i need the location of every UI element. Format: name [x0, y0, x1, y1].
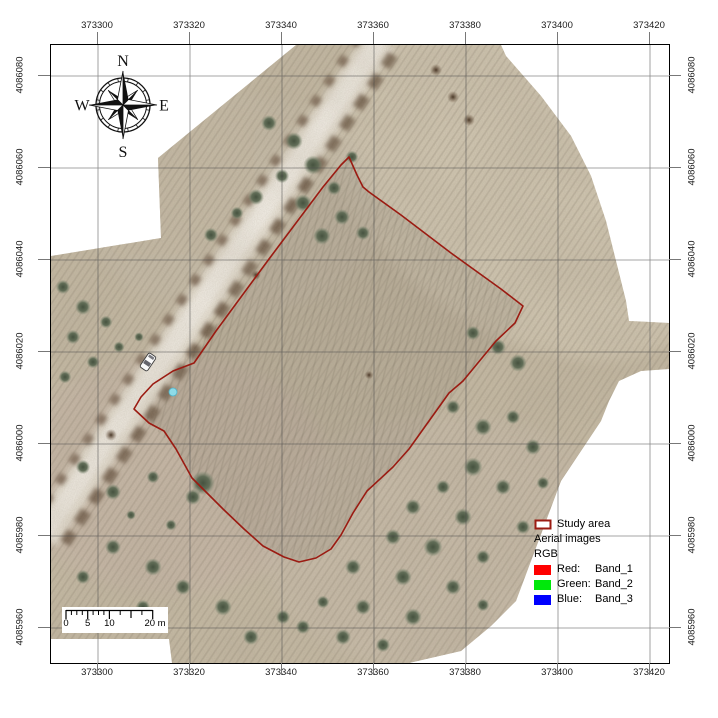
- y-axis-label-left: 4086080: [15, 57, 26, 94]
- axis-tick: [189, 32, 190, 44]
- axis-tick: [38, 167, 50, 168]
- axis-tick: [669, 351, 681, 352]
- axis-tick: [38, 75, 50, 76]
- map-frame: N S E W 0 5 10 20 m: [50, 44, 670, 664]
- legend-band-green-row: Green:Band_2: [534, 577, 633, 592]
- y-axis-label-right: 4086060: [687, 149, 698, 186]
- scale-label-20m: 20 m: [144, 618, 165, 629]
- legend-green-channel: Green:: [557, 577, 595, 592]
- legend-band-blue-row: Blue:Band_3: [534, 592, 633, 607]
- x-axis-label-top: 373420: [633, 20, 665, 31]
- x-axis-label-top: 373300: [81, 20, 113, 31]
- axis-tick: [465, 663, 466, 675]
- scale-label-10: 10: [104, 618, 115, 629]
- y-axis-label-left: 4086000: [15, 425, 26, 462]
- legend-blue-channel: Blue:: [557, 592, 595, 607]
- study-area-swatch: [534, 519, 552, 530]
- axis-tick: [669, 259, 681, 260]
- compass-letter-e: E: [159, 98, 169, 115]
- axis-tick: [557, 663, 558, 675]
- x-axis-label-top: 373360: [357, 20, 389, 31]
- y-axis-label-right: 4086020: [687, 333, 698, 370]
- y-axis-label-right: 4085960: [687, 609, 698, 646]
- axis-tick: [669, 167, 681, 168]
- axis-tick: [649, 663, 650, 675]
- gcp-marker: [169, 388, 177, 396]
- x-axis-label-top: 373340: [265, 20, 297, 31]
- y-axis-label-left: 4086060: [15, 149, 26, 186]
- axis-tick: [373, 32, 374, 44]
- legend-red-channel: Red:: [557, 562, 595, 577]
- axis-tick: [465, 32, 466, 44]
- axis-tick: [557, 32, 558, 44]
- axis-tick: [97, 32, 98, 44]
- axis-tick: [649, 32, 650, 44]
- axis-tick: [97, 663, 98, 675]
- legend-study-area-row: Study area: [534, 517, 633, 532]
- x-axis-label-top: 373320: [173, 20, 205, 31]
- axis-tick: [669, 443, 681, 444]
- legend-layer-title: Aerial images: [534, 532, 633, 547]
- axis-tick: [281, 663, 282, 675]
- axis-tick: [669, 627, 681, 628]
- axis-tick: [669, 535, 681, 536]
- legend-band-red-row: Red:Band_1: [534, 562, 633, 577]
- legend-red-band: Band_1: [595, 563, 633, 575]
- y-axis-label-right: 4086080: [687, 57, 698, 94]
- axis-tick: [281, 32, 282, 44]
- scale-bar: 0 5 10 20 m: [62, 607, 168, 633]
- legend-study-area-label: Study area: [557, 517, 610, 532]
- y-axis-label-right: 4085980: [687, 517, 698, 554]
- scale-label-5: 5: [85, 618, 90, 629]
- compass-rose-icon: N S E W: [68, 47, 178, 163]
- blue-band-swatch: [534, 595, 552, 605]
- legend-blue-band: Band_3: [595, 593, 633, 605]
- x-axis-label-top: 373380: [449, 20, 481, 31]
- axis-tick: [189, 663, 190, 675]
- y-axis-label-left: 4085980: [15, 517, 26, 554]
- compass-letter-n: N: [117, 53, 129, 70]
- y-axis-label-right: 4086000: [687, 425, 698, 462]
- y-axis-label-right: 4086040: [687, 241, 698, 278]
- axis-tick: [669, 75, 681, 76]
- compass-letter-s: S: [119, 144, 128, 161]
- axis-tick: [38, 259, 50, 260]
- x-axis-label-top: 373400: [541, 20, 573, 31]
- legend-renderer-title: RGB: [534, 547, 633, 562]
- scale-label-0: 0: [63, 618, 68, 629]
- axis-tick: [38, 627, 50, 628]
- red-band-swatch: [534, 565, 552, 575]
- compass-letter-w: W: [74, 98, 90, 115]
- legend: Study area Aerial images RGB Red:Band_1 …: [534, 517, 633, 607]
- legend-green-band: Band_2: [595, 578, 633, 590]
- green-band-swatch: [534, 580, 552, 590]
- axis-tick: [373, 663, 374, 675]
- axis-tick: [38, 351, 50, 352]
- y-axis-label-left: 4085960: [15, 609, 26, 646]
- axis-tick: [38, 535, 50, 536]
- y-axis-label-left: 4086020: [15, 333, 26, 370]
- y-axis-label-left: 4086040: [15, 241, 26, 278]
- axis-tick: [38, 443, 50, 444]
